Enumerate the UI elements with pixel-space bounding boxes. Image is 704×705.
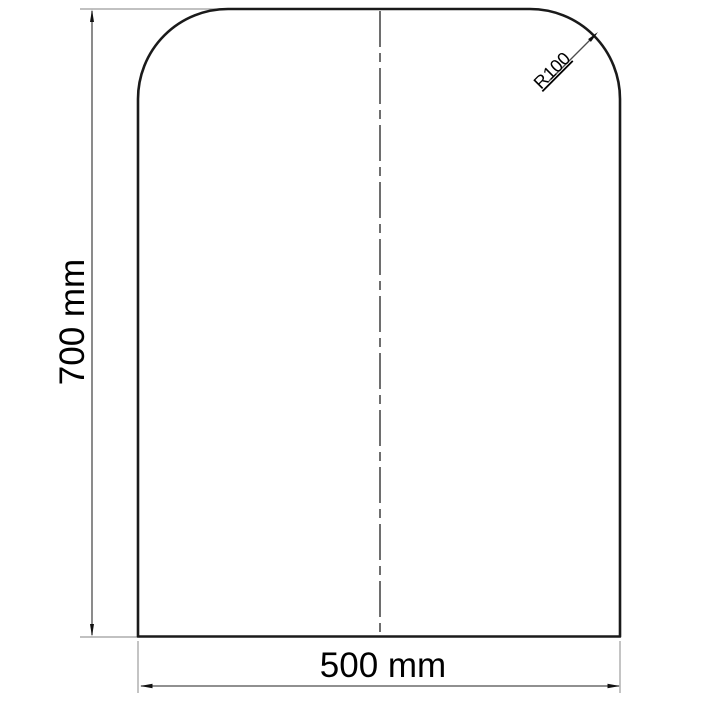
- radius-callout: R100: [530, 32, 598, 93]
- dimensioned-panel-drawing: R100 700 mm 500 mm: [0, 0, 704, 705]
- height-top-arrowhead-icon: [90, 10, 94, 23]
- width-right-arrowhead-icon: [608, 684, 621, 688]
- width-left-arrowhead-icon: [140, 684, 153, 688]
- radius-label: R100: [530, 48, 575, 93]
- height-dimension-label: 700 mm: [53, 259, 92, 385]
- technical-drawing-canvas: R100 700 mm 500 mm: [0, 0, 704, 705]
- height-bottom-arrowhead-icon: [90, 624, 94, 637]
- width-dimension-label: 500 mm: [320, 646, 446, 685]
- height-dimension: [80, 9, 238, 637]
